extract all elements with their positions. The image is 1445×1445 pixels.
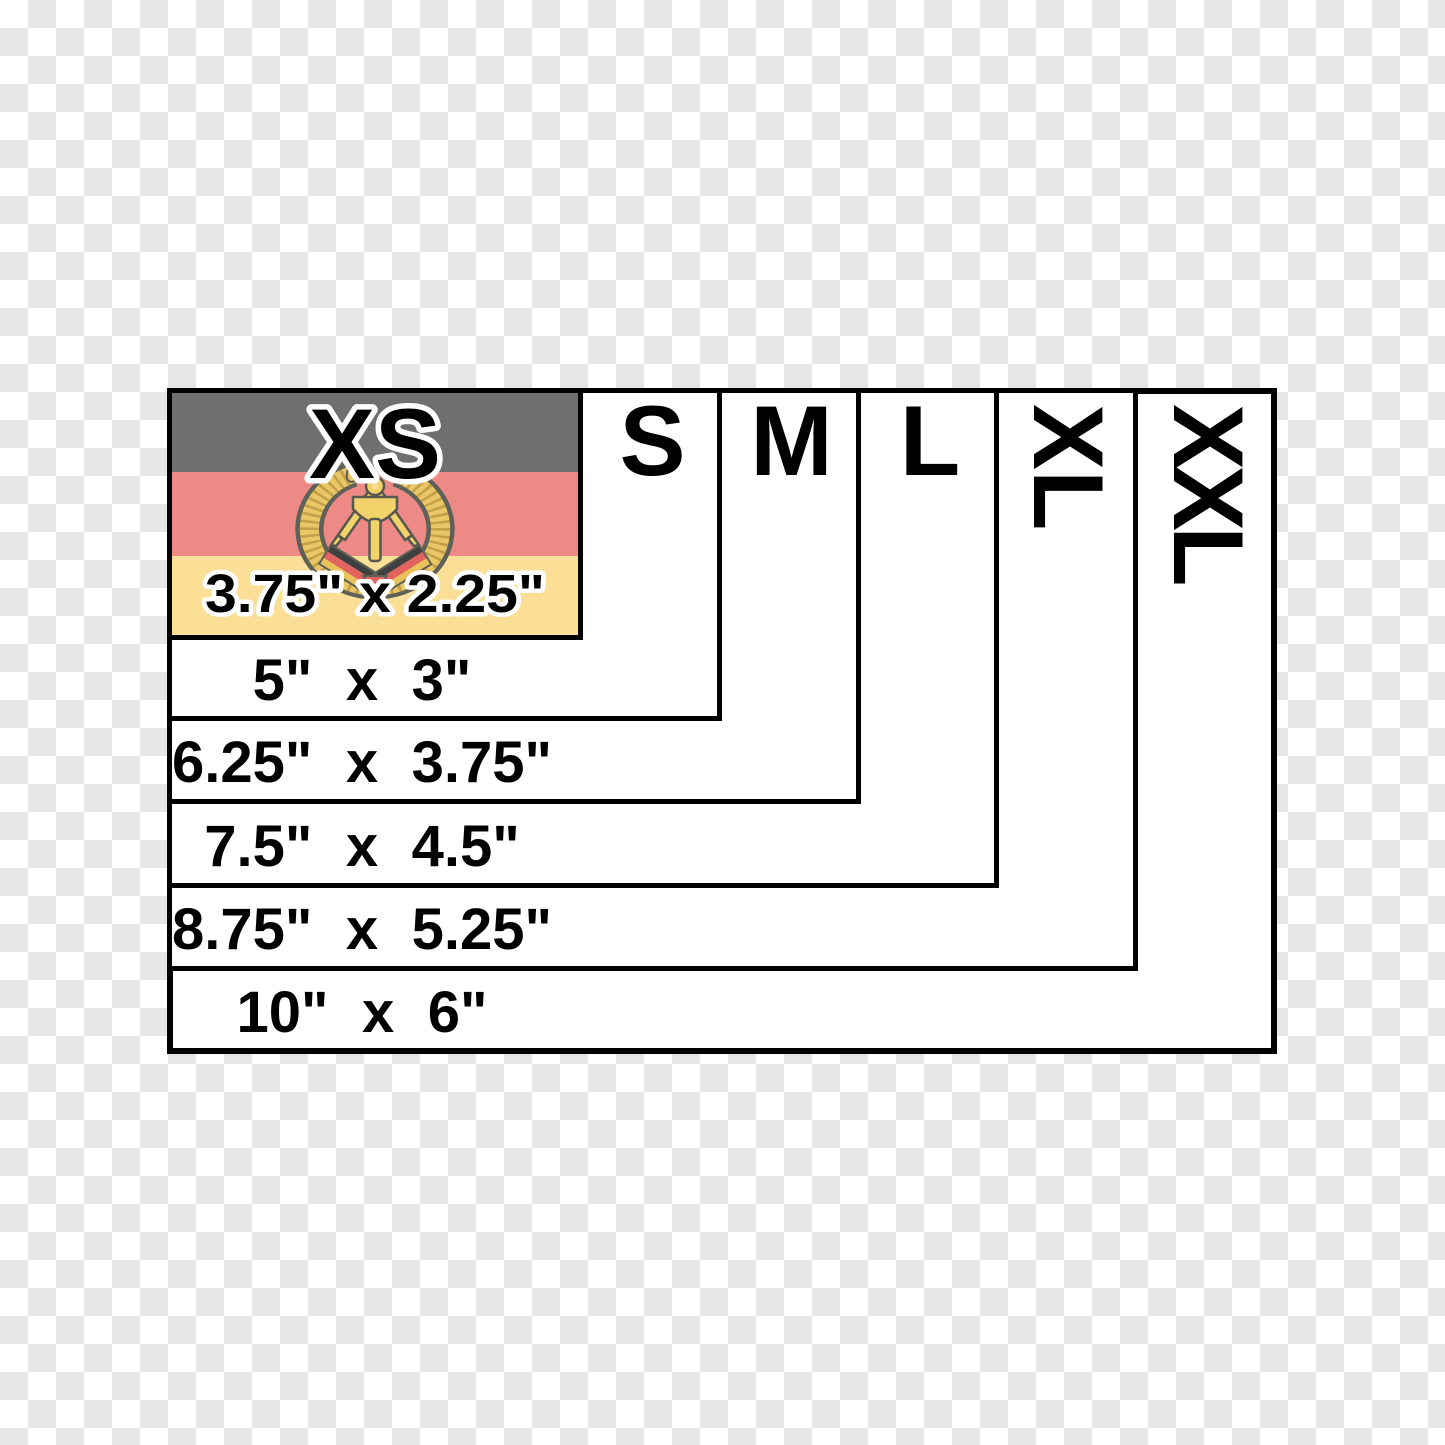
hammer-handle [370, 519, 381, 561]
size-dim-l: 7.5" x 4.5" [167, 804, 557, 888]
size-dim-s: 5" x 3" [167, 640, 557, 721]
flag-east-germany: XS 3.75" x 2.25" [167, 388, 583, 640]
size-letter-m: M [722, 391, 861, 509]
size-letter-s: S [583, 391, 722, 509]
size-dim-xl: 8.75" x 5.25" [167, 888, 557, 971]
size-letter-xs: XS [309, 388, 441, 499]
size-letter-xl: XL [1019, 404, 1118, 531]
sticker-size-chart: XS 3.75" x 2.25" S M L XL XXL 5" x 3" 6.… [167, 388, 1277, 1054]
size-letter-xxl: XXL [1159, 404, 1258, 582]
size-dim-xxl: 10" x 6" [167, 971, 557, 1054]
size-dim-m: 6.25" x 3.75" [167, 721, 557, 804]
size-dim-xs: 3.75" x 2.25" [205, 564, 545, 624]
size-letter-l: L [861, 391, 999, 509]
transparent-checkerboard-background: XS 3.75" x 2.25" S M L XL XXL 5" x 3" 6.… [0, 0, 1445, 1445]
